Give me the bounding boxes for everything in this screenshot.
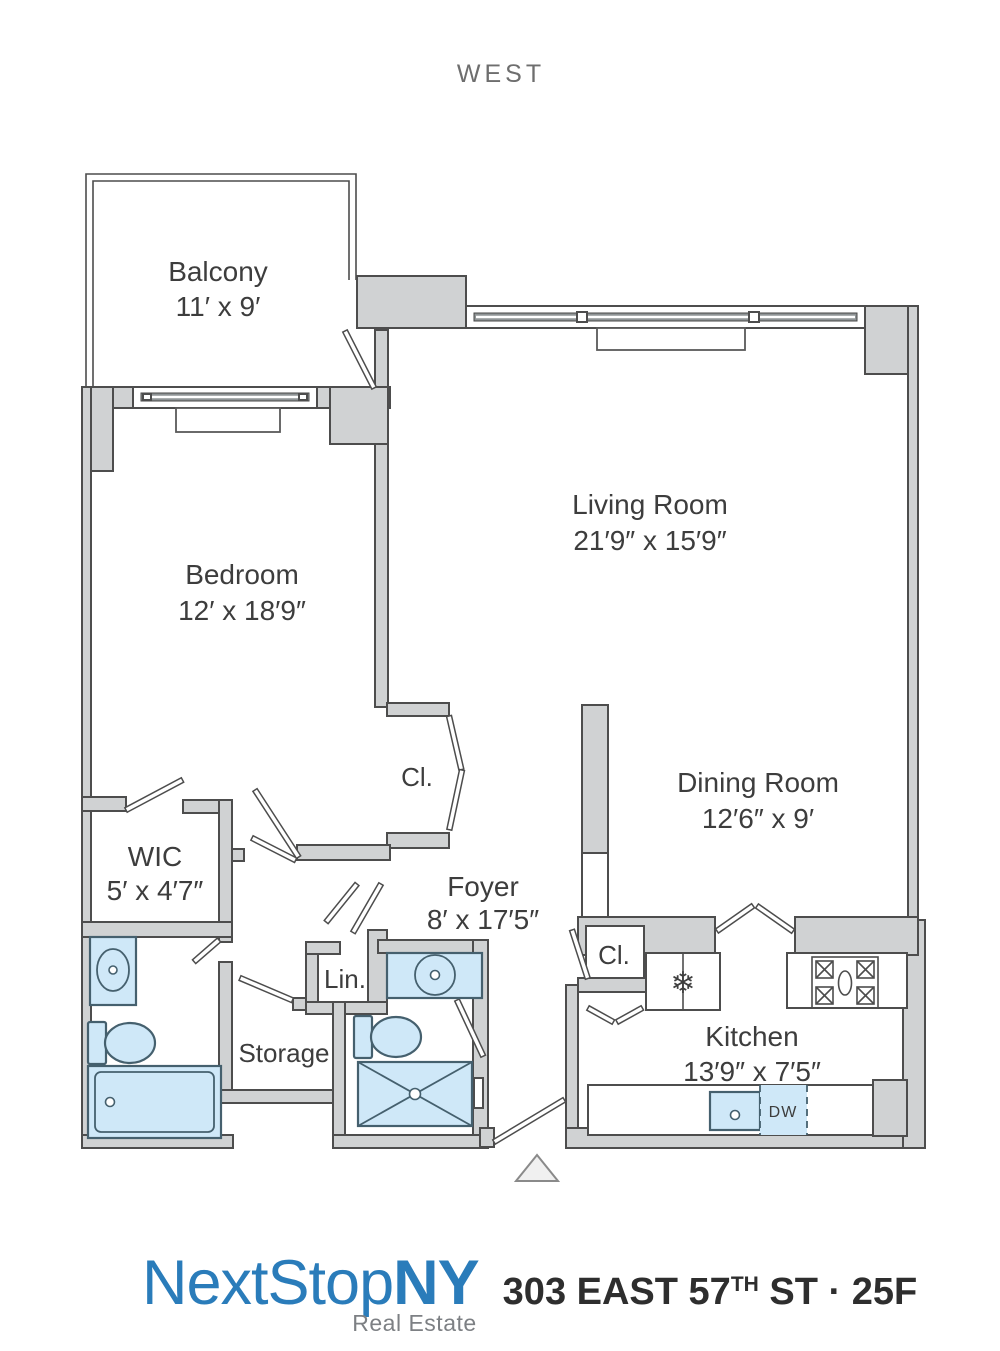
bedroom-name-label: Bedroom xyxy=(185,559,299,590)
balcony-door-leaf xyxy=(343,330,377,389)
kitchen-dims-label: 13′9″ x 7′5″ xyxy=(683,1056,821,1087)
brand-name-light: NextStop xyxy=(142,1248,393,1318)
dining-room-dims-label: 12′6″ x 9′ xyxy=(702,803,814,834)
entry-door-leaf xyxy=(493,1098,566,1145)
floorplan-drawing: WEST xyxy=(0,0,1000,1351)
foyer-dims-label: 8′ x 17′5″ xyxy=(427,904,539,935)
brand-name-bold: NY xyxy=(393,1248,479,1318)
living-room-name-label: Living Room xyxy=(572,489,728,520)
address-ordinal: TH xyxy=(731,1273,759,1296)
wic-name-label: WIC xyxy=(128,841,182,872)
dishwasher-label: DW xyxy=(769,1104,798,1121)
listing-address: 303 EAST 57TH ST · 25F xyxy=(503,1271,918,1314)
brand-tagline: Real Estate xyxy=(352,1312,476,1335)
address-street: 303 EAST 57 xyxy=(503,1271,731,1313)
storage-label: Storage xyxy=(238,1038,329,1068)
bathroom1-fixtures xyxy=(88,937,221,1138)
dishwasher: DW xyxy=(760,1085,807,1135)
bedroom-window xyxy=(133,387,317,432)
brand-logo: NextStopNY Real Estate xyxy=(142,1252,479,1315)
toilet-icon xyxy=(88,1022,155,1064)
linen-closet-label: Lin. xyxy=(324,964,366,994)
wic-door-leaf xyxy=(125,778,184,812)
closet-bifold-leaf xyxy=(447,715,464,770)
svg-text:❄: ❄ xyxy=(670,967,695,1000)
address-suffix: ST · 25F xyxy=(759,1271,917,1313)
floorplan-page: { "orientation_label": "WEST", "rooms": … xyxy=(0,0,1000,1351)
stove-icon xyxy=(787,953,907,1008)
refrigerator-icon: ❄ xyxy=(646,953,720,1010)
sink-icon xyxy=(387,953,482,998)
pass-through-opening xyxy=(582,853,608,917)
bedroom-dims-label: 12′ x 18′9″ xyxy=(178,595,306,626)
living-room-window xyxy=(466,306,865,350)
kitchen-name-label: Kitchen xyxy=(705,1021,798,1052)
closet-bifold-leaf xyxy=(447,769,465,830)
wic-dims-label: 5′ x 4′7″ xyxy=(107,875,204,906)
corridor-door-leaf xyxy=(587,1006,615,1024)
radiator xyxy=(176,408,280,432)
bathroom1-door-leaf xyxy=(192,938,220,963)
radiator xyxy=(597,328,745,350)
dining-room-name-label: Dining Room xyxy=(677,767,839,798)
corridor-door-leaf xyxy=(616,1006,644,1024)
linen-door-leaf xyxy=(324,882,359,923)
balcony-dims-label: 11′ x 9′ xyxy=(176,291,261,322)
dining-double-door-leaf xyxy=(716,904,755,933)
foyer-name-label: Foyer xyxy=(447,871,519,902)
living-room-dims-label: 21′9″ x 15′9″ xyxy=(573,525,726,556)
toilet-icon xyxy=(354,1016,421,1058)
sink-icon xyxy=(90,937,136,1005)
footer: NextStopNY Real Estate 303 EAST 57TH ST … xyxy=(142,1252,917,1315)
dining-double-door-leaf xyxy=(756,904,795,933)
orientation-label: WEST xyxy=(457,60,545,88)
bedroom-closet-label: Cl. xyxy=(401,762,433,792)
kitchen-closet-label: Cl. xyxy=(598,940,630,970)
entry-arrow-icon xyxy=(516,1155,558,1181)
shower-icon xyxy=(358,1062,472,1126)
storage-door-leaf xyxy=(239,976,293,1003)
balcony-name-label: Balcony xyxy=(168,256,268,287)
kitchen-sink-icon xyxy=(710,1092,760,1130)
bathtub-icon xyxy=(88,1066,221,1138)
